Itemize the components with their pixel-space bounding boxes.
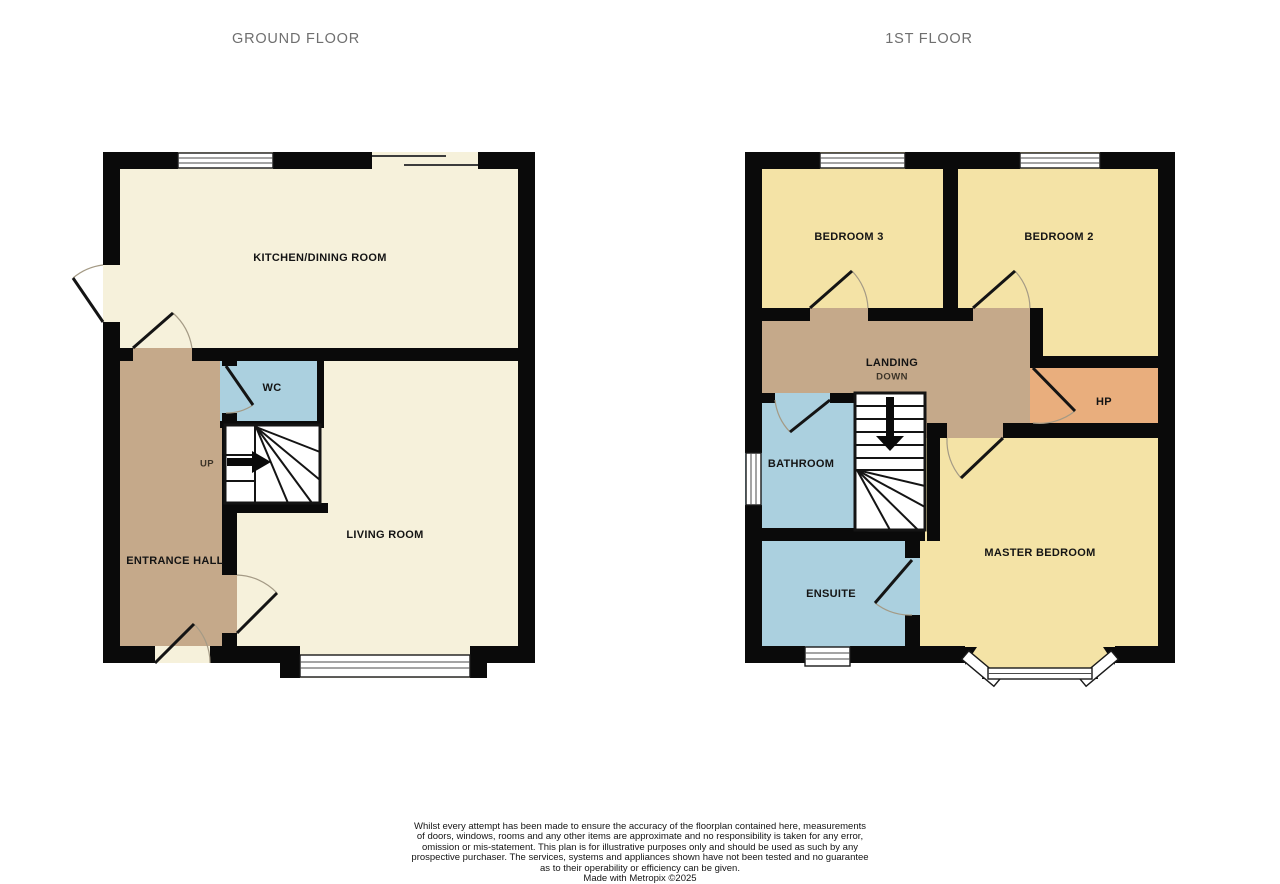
label-hp: HP [1096,396,1112,408]
label-kitchen-dining: KITCHEN/DINING ROOM [253,252,386,264]
label-stairs-down: DOWN [876,372,908,383]
gf-kitchen-window [178,153,273,168]
first-floor-plan [720,150,1200,690]
disclaimer: Whilst every attempt has been made to en… [0,822,1280,884]
first-floor-title: 1ST FLOOR [885,31,973,47]
label-master-bedroom: MASTER BEDROOM [984,547,1095,559]
gf-entrance-hall-area [120,348,237,646]
gf-living-room-window [300,655,470,677]
disclaimer-credit: Made with Metropix ©2025 [0,874,1280,884]
ground-floor-title: GROUND FLOOR [232,31,360,47]
label-bedroom2: BEDROOM 2 [1024,231,1093,243]
label-bedroom3: BEDROOM 3 [814,231,883,243]
label-landing: LANDING [866,357,918,369]
gf-side-door-arc [73,265,103,278]
label-bathroom: BATHROOM [768,458,834,470]
ff-ensuite-window [805,647,850,666]
label-living-room: LIVING ROOM [346,529,423,541]
gf-side-door [73,278,103,322]
label-ensuite: ENSUITE [806,588,856,600]
ground-floor-plan [60,150,540,690]
gf-stairs [225,425,320,503]
ff-bathroom-window [746,453,761,505]
ff-stairs [855,393,925,530]
label-entrance-hall: ENTRANCE HALL [126,555,223,567]
label-stairs-up: UP [200,459,214,470]
ff-bedroom3-window [820,153,905,168]
ff-bedroom2-window [1020,153,1100,168]
label-wc: WC [263,382,282,394]
floorplan-page: GROUND FLOOR 1ST FLOOR [0,0,1280,884]
